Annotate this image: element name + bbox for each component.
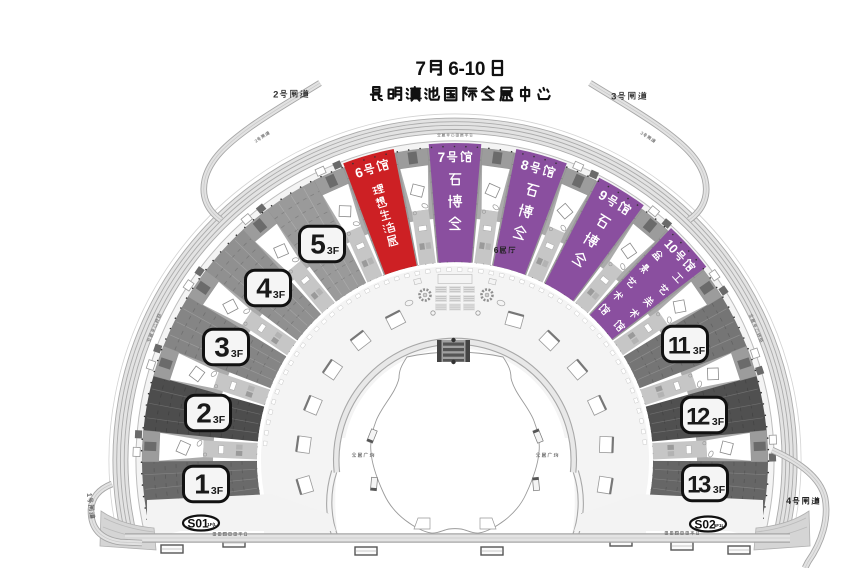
svg-text:12: 12 <box>686 404 710 431</box>
svg-text:7: 7 <box>438 150 445 165</box>
svg-text:S02: S02 <box>694 518 716 532</box>
svg-text:3F: 3F <box>231 348 244 360</box>
svg-text:3F: 3F <box>273 289 286 301</box>
svg-text:11: 11 <box>668 333 691 360</box>
svg-text:6-10: 6-10 <box>448 59 485 80</box>
svg-text:1F(L: 1F(L <box>207 522 217 527</box>
svg-text:3: 3 <box>611 91 616 102</box>
svg-text:5F1L: 5F1L <box>714 523 725 528</box>
svg-text:13: 13 <box>687 472 711 499</box>
svg-text:2: 2 <box>273 89 278 100</box>
svg-text:1: 1 <box>194 469 209 500</box>
svg-text:3F: 3F <box>693 345 706 357</box>
svg-text:3F: 3F <box>213 414 226 426</box>
svg-text:S01: S01 <box>187 517 209 531</box>
svg-text:6: 6 <box>494 245 499 255</box>
svg-text:5: 5 <box>310 229 325 260</box>
svg-text:4: 4 <box>256 273 272 304</box>
svg-text:4: 4 <box>786 496 791 506</box>
svg-text:3F: 3F <box>211 485 224 497</box>
svg-text:3: 3 <box>214 332 229 363</box>
svg-text:3F: 3F <box>327 245 340 257</box>
svg-text:3F: 3F <box>712 416 725 428</box>
svg-text:3F: 3F <box>713 484 726 496</box>
svg-text:7: 7 <box>415 59 425 80</box>
svg-text:2: 2 <box>196 398 211 429</box>
